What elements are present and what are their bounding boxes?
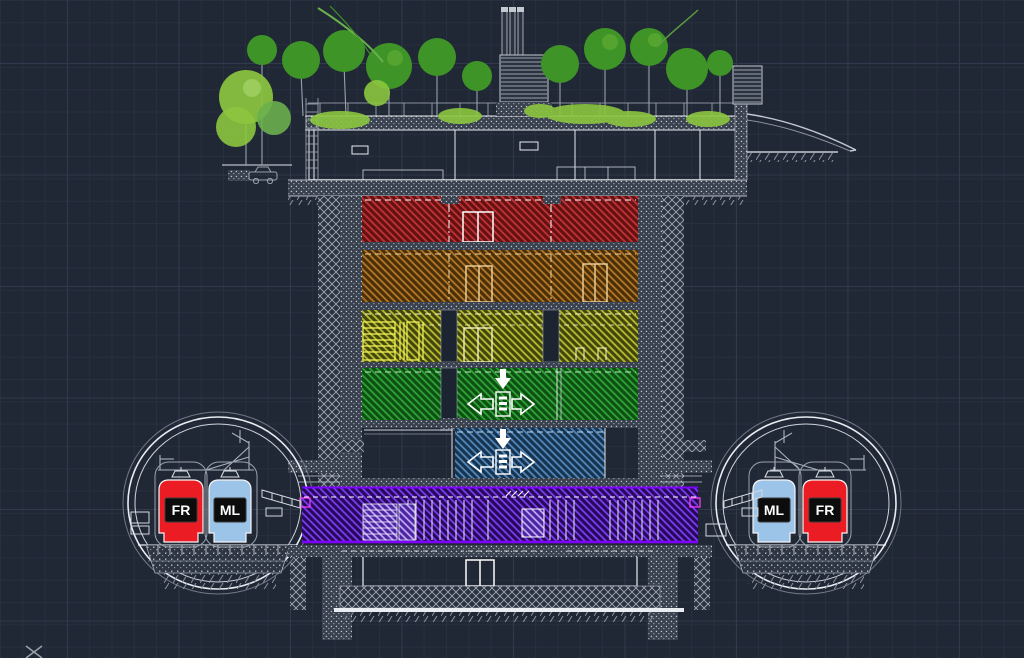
platform-door xyxy=(522,509,544,537)
planter xyxy=(228,170,250,181)
slab-5 xyxy=(340,478,682,487)
train-label-ml-left[interactable]: ML xyxy=(214,498,246,522)
svg-text:ML: ML xyxy=(220,502,241,518)
column xyxy=(441,310,457,362)
level-3-yellow xyxy=(362,310,638,362)
ground-floor-interior xyxy=(309,130,747,180)
base-slab-line xyxy=(334,608,684,612)
base-slab xyxy=(340,586,660,608)
svg-text:FR: FR xyxy=(172,502,191,518)
slab-2 xyxy=(340,302,660,310)
level-1-red xyxy=(362,196,638,242)
svg-text:ML: ML xyxy=(764,502,785,518)
train-label-fr-left[interactable]: FR xyxy=(165,498,197,522)
canopy xyxy=(747,114,856,151)
svg-text:FR: FR xyxy=(816,502,835,518)
level-2-brown xyxy=(362,250,638,302)
ucs-mark xyxy=(26,646,42,658)
train-label-fr-right[interactable]: FR xyxy=(809,498,841,522)
door xyxy=(466,560,494,586)
section-drawing: FR ML ML FR xyxy=(0,0,1024,658)
right-vent-louver xyxy=(733,66,762,104)
cad-viewport[interactable]: FR ML ML FR xyxy=(0,0,1024,658)
train-label-ml-right[interactable]: ML xyxy=(758,498,790,522)
left-corridor-floor xyxy=(288,545,342,557)
left-stair-ladder xyxy=(306,98,318,180)
slab-3 xyxy=(340,362,660,368)
ground-slab xyxy=(288,180,747,196)
right-corridor xyxy=(660,440,712,482)
roof-slab xyxy=(305,116,743,130)
slab-4 xyxy=(340,420,660,428)
window xyxy=(520,142,538,150)
slab-1 xyxy=(340,242,660,250)
level-4-green xyxy=(362,368,638,420)
column xyxy=(543,310,559,362)
level-6-purple-platform xyxy=(300,487,700,543)
level-5-blue-concourse xyxy=(364,428,605,478)
window xyxy=(352,146,368,154)
column xyxy=(441,368,457,420)
basement-level xyxy=(334,557,684,622)
right-corridor-floor xyxy=(658,545,712,557)
car xyxy=(249,167,277,184)
